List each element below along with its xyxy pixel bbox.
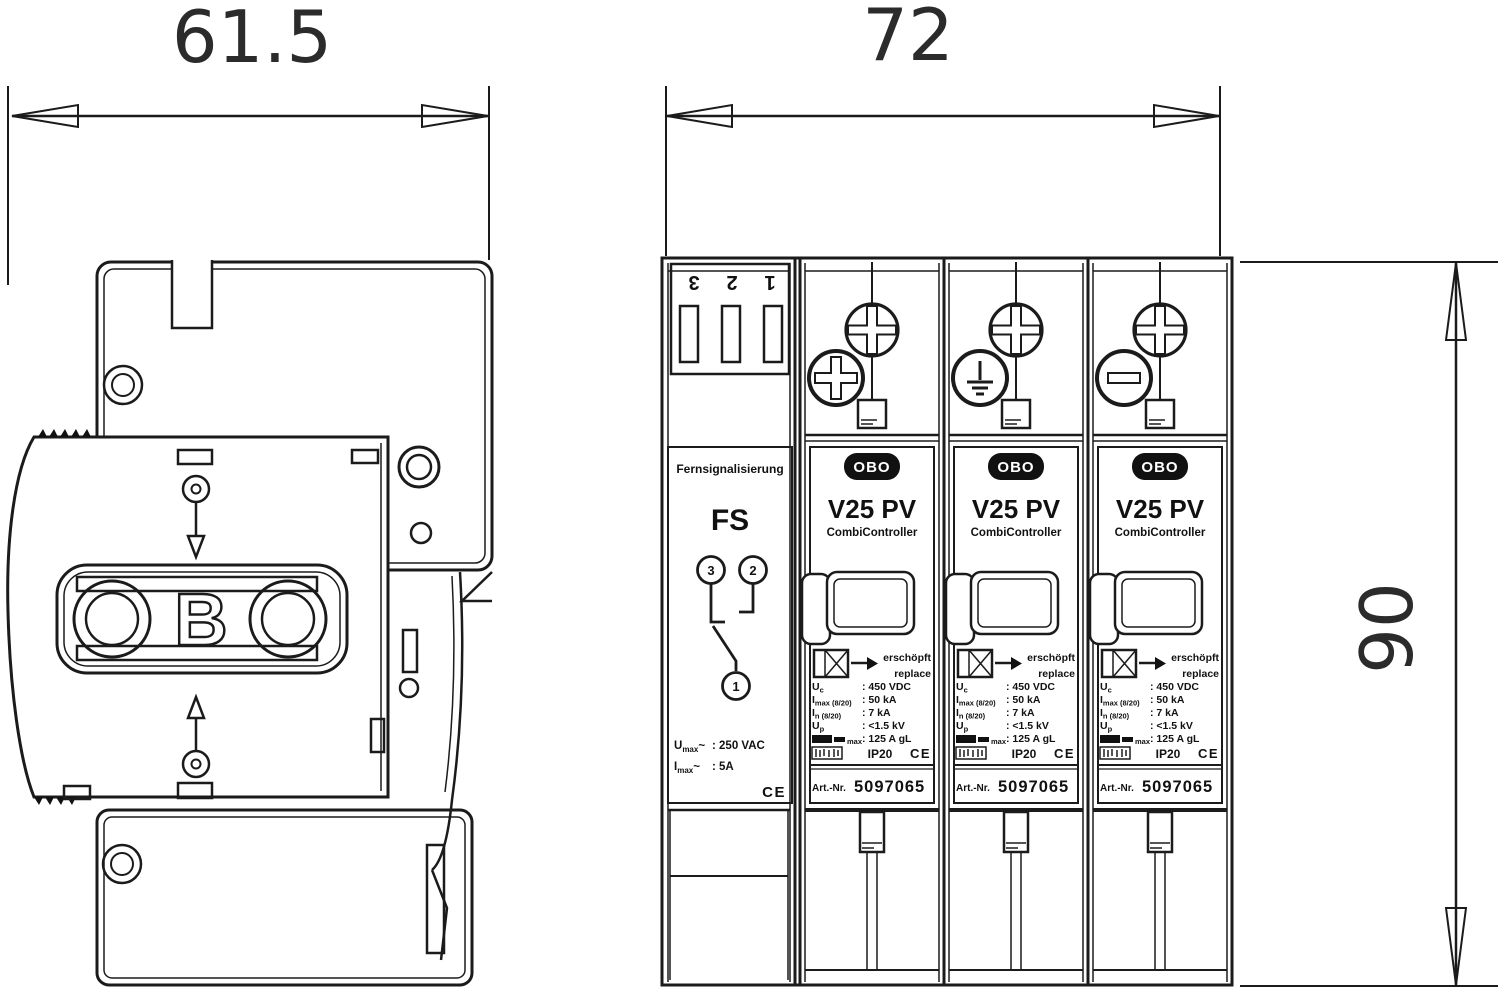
side-cartridge: B [8,429,388,805]
earth-screw-icon [953,351,1007,405]
fs-ratings: Umax~ : 250 VAC Imax~ : 5A [674,740,765,775]
fs-terminal-block: 3 2 1 [671,264,789,374]
fs-contact-2: 2 [749,563,756,578]
fs-heading-small: Fernsignalisierung [676,462,783,476]
fs-ce-mark: CE [762,784,786,801]
fs-heading: FS [711,504,749,537]
drawing-svg: OBO V25 PV CombiController erschöpft rep… [0,0,1500,991]
side-view: B [8,260,492,985]
fs-bottom-section [668,810,790,980]
fs-terminal-1: 1 [764,271,775,293]
technical-drawing-page: OBO V25 PV CombiController erschöpft rep… [0,0,1500,991]
v25-module-3 [1088,258,1232,985]
fs-rating-label: Imax~ [674,761,700,775]
fs-rating-label: Umax~ [674,740,705,754]
fs-rating-value: : 5A [712,761,734,773]
dimension-value-90: 90 [1345,582,1429,674]
fs-contact-3: 3 [707,563,714,578]
dimension-value-72: 72 [862,0,954,77]
front-view: 3 2 1 Fernsignalisierung FS 3 2 [662,258,1232,985]
dimension-side-width: 61.5 [8,0,489,285]
fs-terminal-3: 3 [688,271,699,293]
logo-letter-b: B [174,578,227,661]
plus-screw-icon [809,351,863,405]
dimension-value-61-5: 61.5 [172,0,332,79]
fs-rating-value: : 250 VAC [712,740,765,752]
v25-module-2 [944,258,1088,985]
fs-contact-1: 1 [732,679,739,694]
fs-terminal-2: 2 [726,271,737,293]
minus-screw-icon [1097,351,1151,405]
side-bottom-block [97,810,472,985]
fs-module: 3 2 1 Fernsignalisierung FS 3 2 [668,258,795,985]
v25-module-1 [800,258,944,985]
teeth-top-icon [38,429,91,437]
dimension-height: 90 [1240,262,1498,986]
fs-contact-diagram: 3 2 1 [698,557,767,700]
dimension-front-width: 72 [666,0,1220,256]
